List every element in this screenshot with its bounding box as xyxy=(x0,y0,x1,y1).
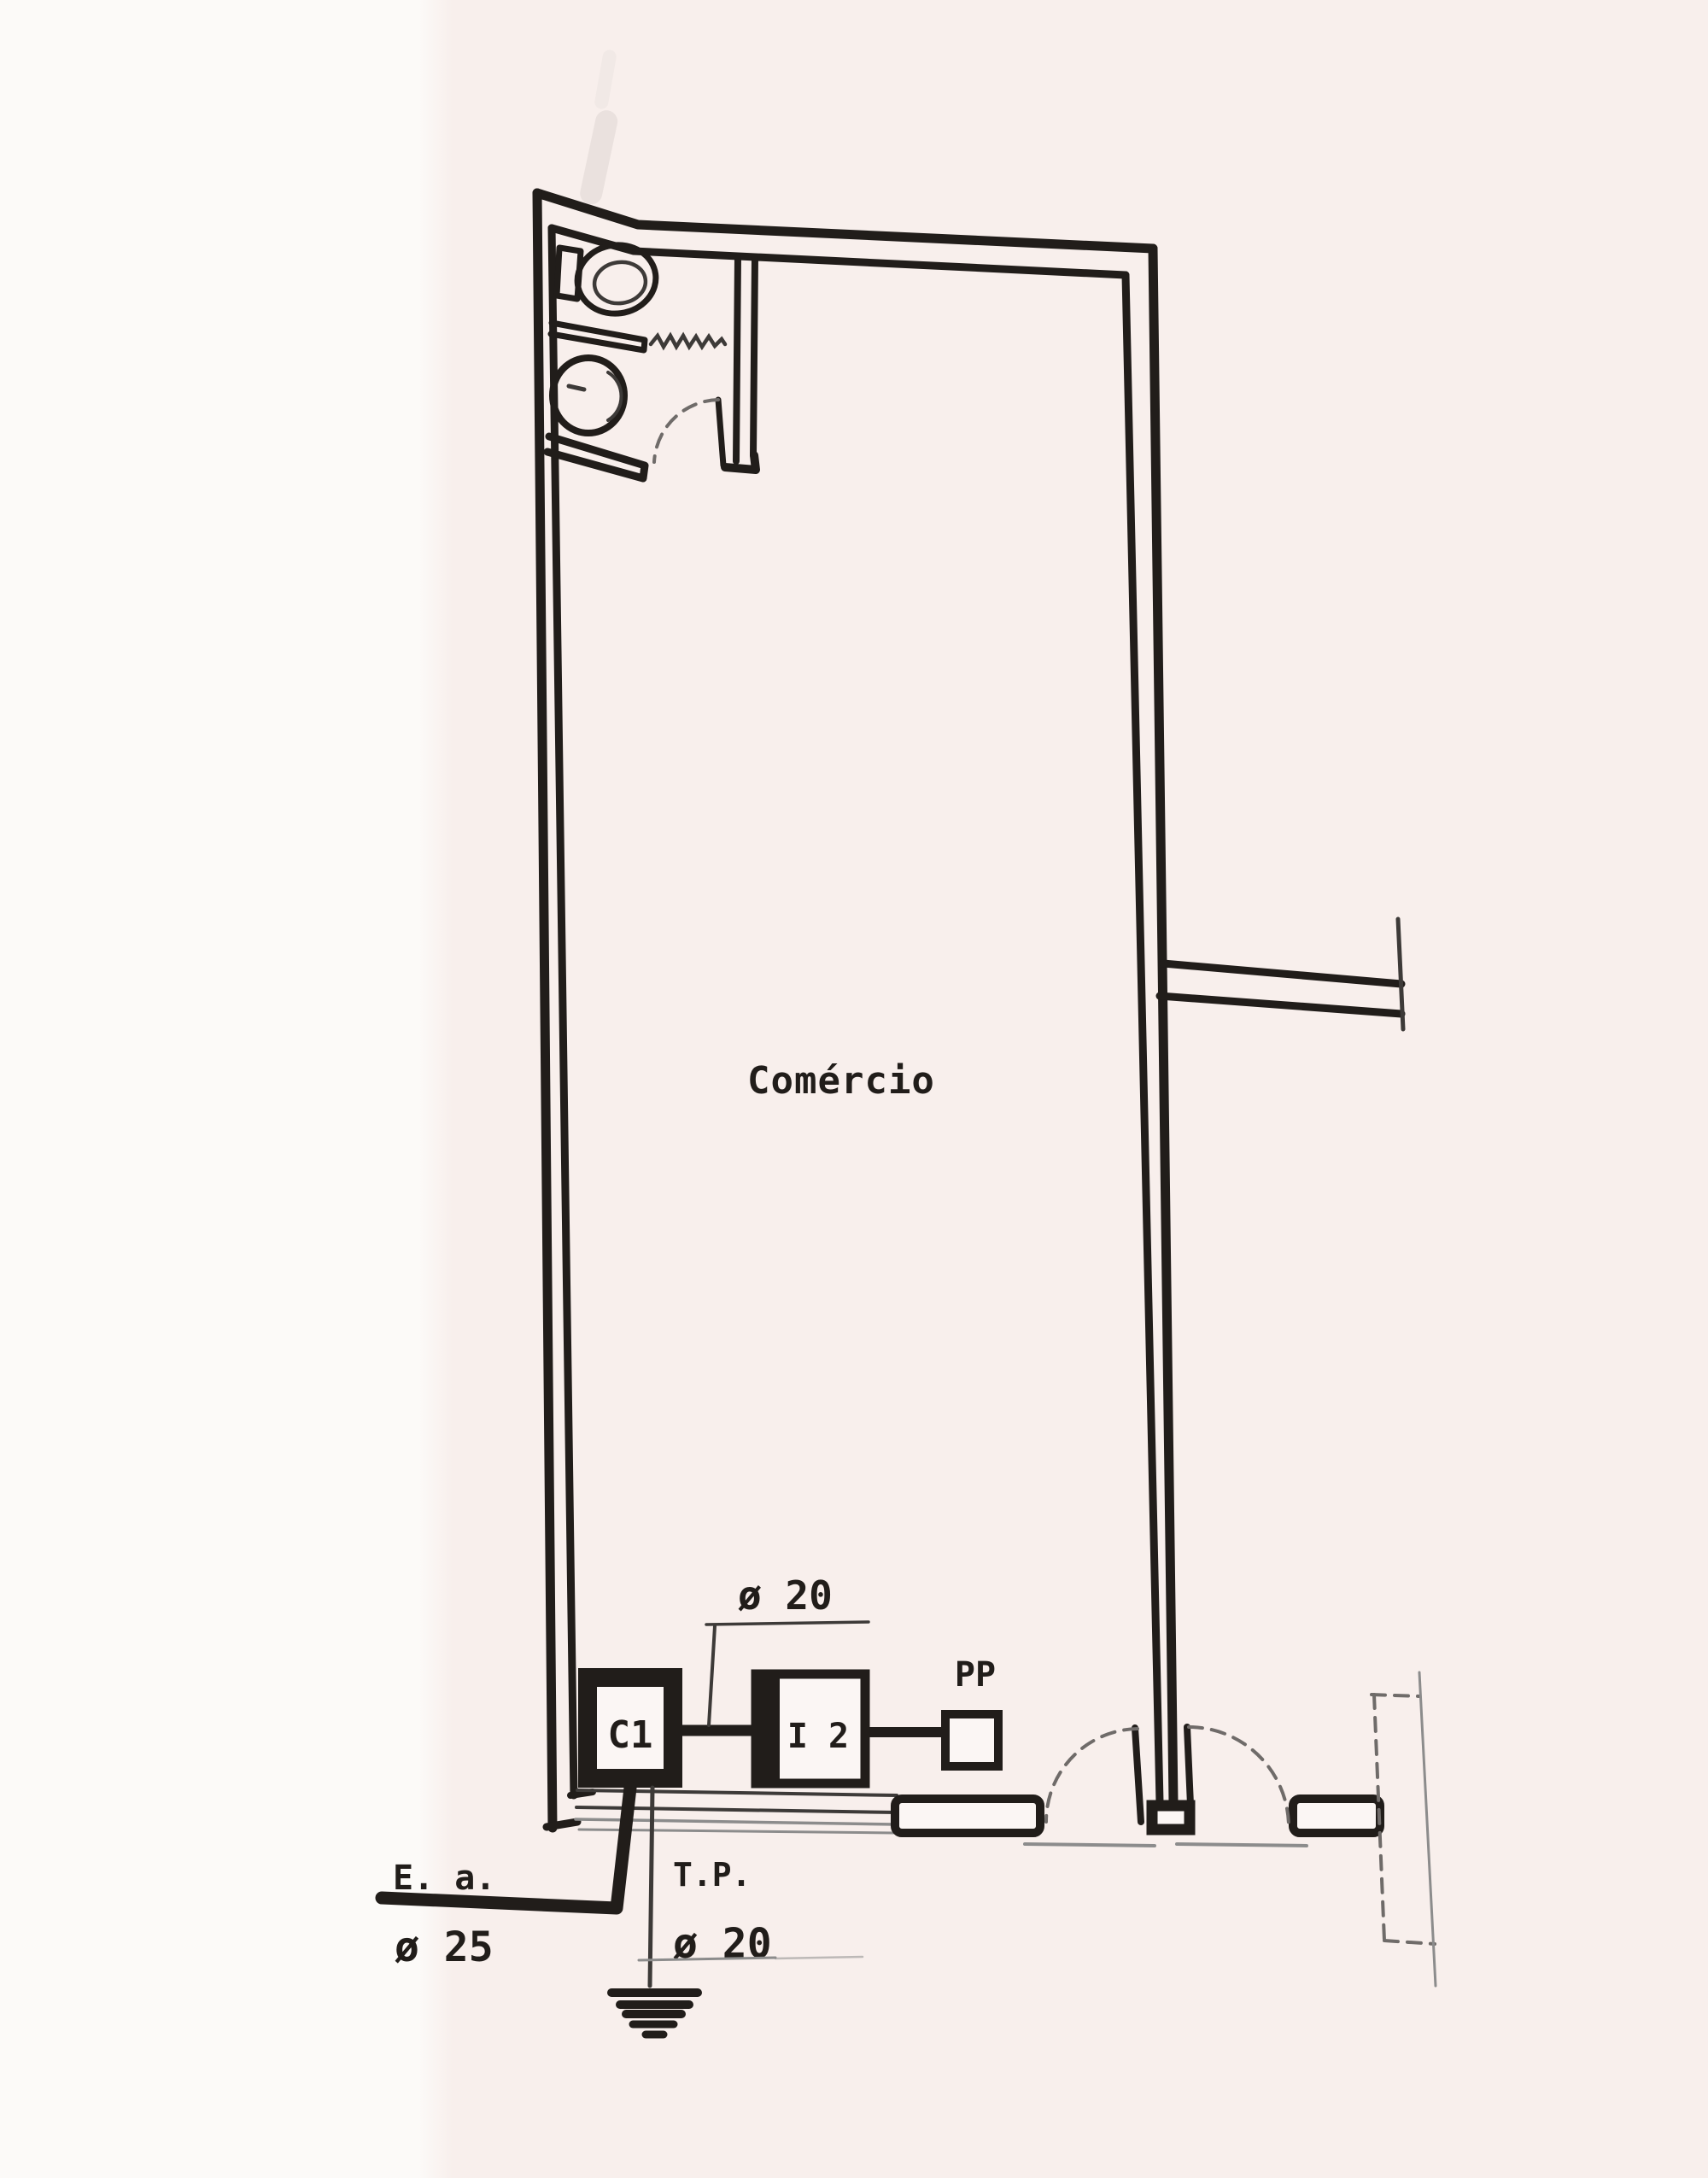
floor-plan-svg: C1 I 2 PP ø 20 E. a. ø 25 T.P. ø 2 xyxy=(0,0,1708,2178)
sink-icon xyxy=(553,358,624,433)
sill-left xyxy=(895,1799,1040,1833)
toilet-icon xyxy=(557,240,660,319)
ground-size-label: ø 20 xyxy=(673,1920,772,1968)
exterior-walls xyxy=(537,193,1190,1830)
entry-conduit: E. a. ø 25 xyxy=(382,1788,630,1971)
entry-label: E. a. xyxy=(393,1859,495,1898)
curtain-zigzag xyxy=(651,336,725,347)
room-label: Comércio xyxy=(747,1059,935,1103)
door-pier xyxy=(1152,1806,1190,1830)
ground-label: T.P. xyxy=(673,1856,752,1894)
bathroom-door xyxy=(654,400,723,465)
box-pp: PP xyxy=(945,1655,998,1766)
entrance-door-right xyxy=(1177,1727,1307,1846)
right-wall-stub xyxy=(1160,919,1403,1029)
ground-symbol xyxy=(611,1993,698,2035)
box-i2: I 2 xyxy=(756,1674,865,1783)
scan-smudge xyxy=(578,49,620,207)
box-pp-label: PP xyxy=(955,1655,996,1695)
bathroom xyxy=(547,240,756,478)
scanned-floor-plan-page: C1 I 2 PP ø 20 E. a. ø 25 T.P. ø 2 xyxy=(0,0,1708,2178)
box-c1-label: C1 xyxy=(608,1713,653,1757)
dimension-riser-label: ø 20 xyxy=(738,1572,833,1619)
entry-size-label: ø 25 xyxy=(395,1923,494,1971)
box-i2-label: I 2 xyxy=(787,1717,849,1756)
box-c1: C1 xyxy=(588,1677,673,1778)
sill-right xyxy=(1293,1799,1380,1833)
